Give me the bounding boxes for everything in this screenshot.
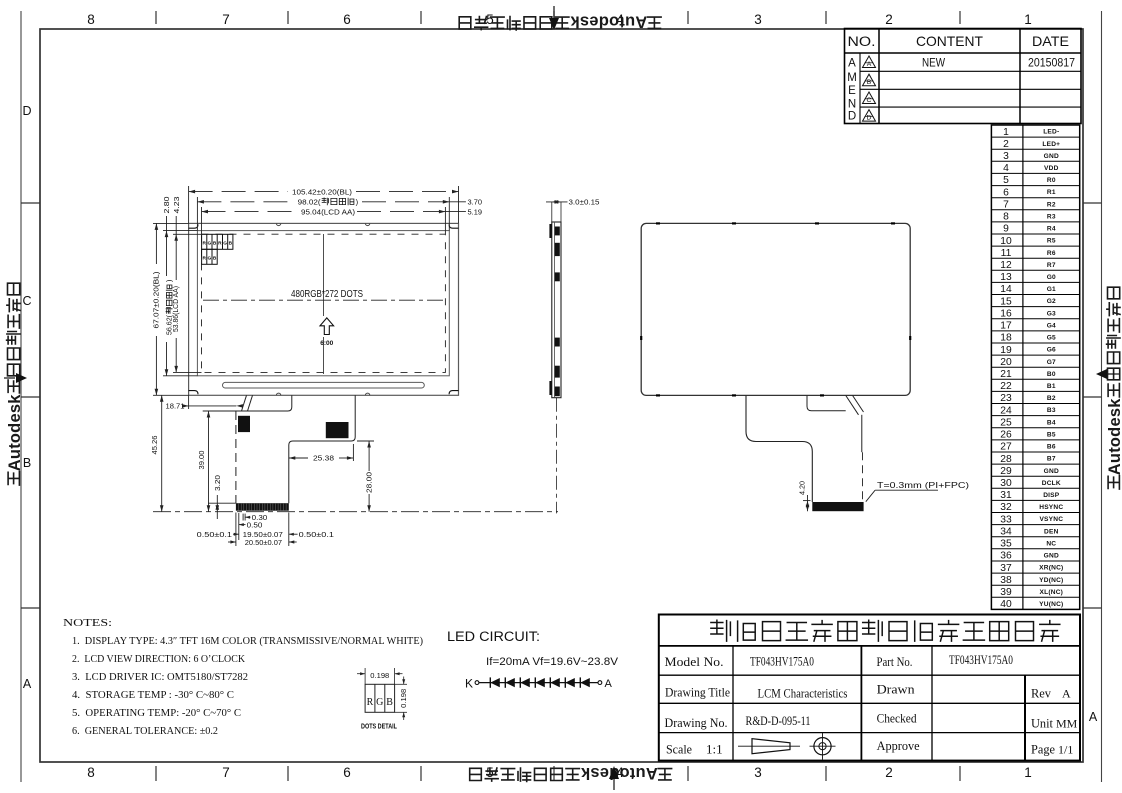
svg-text:480RGB*272 DOTS: 480RGB*272 DOTS	[291, 288, 363, 300]
svg-text:G5: G5	[1047, 335, 1056, 342]
svg-text:R: R	[218, 241, 222, 247]
svg-text:Scale: Scale	[666, 741, 692, 756]
svg-text:GND: GND	[1044, 468, 1059, 475]
svg-text:R: R	[202, 256, 206, 262]
svg-text:GND: GND	[1044, 553, 1059, 560]
svg-text:NO.: NO.	[848, 34, 876, 49]
svg-text:26: 26	[1000, 430, 1012, 441]
svg-text:0.198: 0.198	[401, 689, 408, 708]
svg-text:0.198: 0.198	[370, 673, 389, 680]
svg-text:4.20: 4.20	[799, 481, 806, 495]
svg-text:30: 30	[1000, 478, 1012, 489]
svg-text:20: 20	[1000, 357, 1012, 368]
svg-text:Model No.: Model No.	[665, 654, 724, 669]
svg-text:If=20mA Vf=19.6V~23.8V: If=20mA Vf=19.6V~23.8V	[486, 656, 619, 668]
svg-text:9: 9	[1003, 224, 1009, 235]
svg-text:23: 23	[1000, 393, 1012, 404]
svg-text:38: 38	[1000, 575, 1012, 586]
svg-text:2: 2	[885, 765, 893, 780]
svg-text:B: B	[213, 241, 217, 247]
svg-text:E: E	[848, 85, 856, 97]
svg-text:8: 8	[87, 12, 95, 27]
svg-text:6:00: 6:00	[320, 340, 333, 347]
svg-text:R5: R5	[1047, 238, 1056, 245]
svg-text:NC: NC	[1046, 540, 1056, 547]
svg-text:XR(NC): XR(NC)	[1039, 565, 1063, 572]
svg-text:29: 29	[1000, 466, 1012, 477]
svg-text:1:1: 1:1	[706, 741, 723, 756]
svg-text:CONTENT: CONTENT	[916, 33, 983, 49]
svg-text:DISP: DISP	[1043, 492, 1060, 499]
svg-text:DEN: DEN	[1044, 528, 1059, 535]
svg-text:32: 32	[1000, 502, 1012, 513]
svg-text:R: R	[202, 241, 206, 247]
svg-text:Autodesk: Autodesk	[580, 764, 657, 782]
svg-text:NEW: NEW	[922, 56, 946, 70]
svg-text:B: B	[213, 256, 217, 262]
svg-text:G2: G2	[1047, 298, 1056, 305]
svg-text:R2: R2	[1047, 201, 1056, 208]
svg-text:5.19: 5.19	[468, 208, 483, 217]
svg-text:24: 24	[1000, 405, 1012, 416]
svg-text:8: 8	[1003, 212, 1009, 223]
svg-text:28.00: 28.00	[365, 472, 374, 493]
svg-text:10: 10	[1000, 236, 1012, 247]
svg-text:1: 1	[1003, 127, 1009, 138]
svg-text:G: G	[376, 697, 383, 708]
svg-text:1/1: 1/1	[1058, 742, 1073, 756]
svg-text:3: 3	[754, 765, 762, 780]
svg-text:20.50±0.07: 20.50±0.07	[245, 538, 282, 547]
svg-text:C: C	[22, 294, 31, 308]
svg-text:31: 31	[1000, 490, 1012, 501]
svg-text:35: 35	[1000, 539, 1012, 550]
svg-text:R3: R3	[1047, 214, 1056, 221]
svg-text:16: 16	[1000, 308, 1012, 319]
svg-text:7: 7	[1003, 200, 1009, 211]
svg-text:28: 28	[1000, 454, 1012, 465]
svg-text:25: 25	[1000, 417, 1012, 428]
svg-text:TF043HV175A0: TF043HV175A0	[750, 654, 814, 669]
svg-text:G: G	[208, 241, 212, 247]
svg-text:45.26: 45.26	[150, 436, 159, 455]
svg-text:36: 36	[1000, 551, 1012, 562]
svg-text:G7: G7	[1047, 359, 1056, 366]
svg-text:R7: R7	[1047, 262, 1056, 269]
svg-text:G4: G4	[1047, 323, 1056, 330]
svg-text:TF043HV175A0: TF043HV175A0	[949, 652, 1013, 667]
svg-text:67.07±0.20(BL): 67.07±0.20(BL)	[151, 271, 160, 329]
svg-text:98.02(: 98.02(	[298, 198, 322, 207]
svg-text:GND: GND	[1044, 153, 1059, 160]
svg-text:Drawing No.: Drawing No.	[665, 715, 728, 730]
svg-text:0.50±0.1: 0.50±0.1	[299, 530, 334, 539]
svg-text:N: N	[848, 99, 856, 111]
svg-text:Autodesk: Autodesk	[6, 394, 24, 471]
svg-text:D: D	[848, 111, 856, 123]
svg-text:5. OPERATING TEMP: -20° C~70°: 5. OPERATING TEMP: -20° C~70° C	[72, 707, 241, 719]
svg-text:T=0.3mm (PI+FPC): T=0.3mm (PI+FPC)	[877, 480, 969, 490]
svg-text:39.00: 39.00	[197, 451, 206, 470]
svg-text:A: A	[1089, 710, 1098, 724]
svg-text:R4: R4	[1047, 226, 1056, 233]
svg-text:95.04(LCD AA): 95.04(LCD AA)	[301, 207, 356, 216]
svg-text:18: 18	[1000, 333, 1012, 344]
svg-text:4: 4	[1003, 163, 1009, 174]
svg-text:1. DISPLAY TYPE: 4.3″ TFT 16M: 1. DISPLAY TYPE: 4.3″ TFT 16M COLOR (TRA…	[72, 635, 423, 647]
svg-text:R1: R1	[1047, 189, 1056, 196]
svg-text:A: A	[605, 678, 613, 690]
svg-text:DOTS DETAIL: DOTS DETAIL	[361, 722, 397, 731]
svg-text:A: A	[23, 677, 32, 691]
svg-text:G0: G0	[1047, 274, 1056, 281]
svg-text:LED-: LED-	[1043, 129, 1059, 136]
svg-text:3: 3	[754, 12, 762, 27]
svg-text:B: B	[867, 79, 872, 86]
svg-text:40: 40	[1000, 599, 1012, 610]
svg-text:HSYNC: HSYNC	[1039, 504, 1063, 511]
svg-text:R0: R0	[1047, 177, 1056, 184]
svg-text:20150817: 20150817	[1028, 58, 1075, 70]
svg-text:DCLK: DCLK	[1042, 480, 1061, 487]
svg-text:B1: B1	[1047, 383, 1056, 390]
svg-text:25.38: 25.38	[313, 454, 334, 463]
svg-text:0.50±0.1: 0.50±0.1	[197, 530, 232, 539]
svg-text:B3: B3	[1047, 407, 1056, 414]
svg-text:MM: MM	[1056, 716, 1078, 730]
svg-text:G6: G6	[1047, 347, 1056, 354]
svg-text:39: 39	[1000, 587, 1012, 598]
svg-text:3. LCD DRIVER IC: OMT5180/ST7: 3. LCD DRIVER IC: OMT5180/ST7282	[72, 671, 248, 683]
svg-text:R6: R6	[1047, 250, 1056, 257]
svg-text:Autodesk: Autodesk	[570, 13, 647, 31]
svg-text:R&D-D-095-11: R&D-D-095-11	[746, 714, 811, 728]
svg-text:3.20: 3.20	[213, 475, 222, 491]
svg-text:Drawing Title: Drawing Title	[665, 684, 730, 699]
svg-text:3.0±0.15: 3.0±0.15	[569, 198, 600, 207]
svg-text:Page: Page	[1031, 741, 1055, 756]
svg-text:6: 6	[343, 12, 351, 27]
svg-text:LCM Characteristics: LCM Characteristics	[758, 686, 848, 700]
svg-text:2: 2	[1003, 139, 1009, 150]
svg-text:C: C	[867, 97, 872, 104]
svg-text:1: 1	[1024, 12, 1032, 27]
svg-text:A: A	[867, 61, 872, 68]
svg-text:2. LCD VIEW DIRECTION: 6 O’CL: 2. LCD VIEW DIRECTION: 6 O’CLOCK	[72, 653, 245, 665]
svg-text:A: A	[848, 58, 856, 70]
svg-text:21: 21	[1000, 369, 1012, 380]
svg-text:G: G	[208, 256, 212, 262]
svg-text:B: B	[229, 241, 233, 247]
svg-text:B7: B7	[1047, 456, 1056, 463]
svg-text:YU(NC): YU(NC)	[1039, 601, 1063, 608]
svg-text:3.70: 3.70	[468, 198, 483, 207]
svg-text:14: 14	[1000, 284, 1012, 295]
svg-text:Autodesk: Autodesk	[1106, 398, 1122, 475]
svg-text:27: 27	[1000, 442, 1012, 453]
svg-text:VDD: VDD	[1044, 165, 1059, 172]
svg-text:M: M	[847, 72, 857, 84]
svg-text:53.86(LCD AA): 53.86(LCD AA)	[171, 286, 180, 332]
svg-text:Approve: Approve	[877, 738, 920, 753]
svg-text:D: D	[22, 104, 31, 118]
svg-text:G1: G1	[1047, 286, 1056, 293]
svg-text:YD(NC): YD(NC)	[1039, 577, 1063, 584]
svg-text:34: 34	[1000, 526, 1012, 537]
svg-text:NOTES:: NOTES:	[63, 617, 112, 629]
svg-text:B5: B5	[1047, 431, 1056, 438]
svg-text:105.42±0.20(BL): 105.42±0.20(BL)	[292, 187, 353, 196]
svg-text:A: A	[1062, 687, 1071, 701]
svg-text:6: 6	[1003, 187, 1009, 198]
svg-text:R: R	[367, 697, 374, 708]
svg-text:G: G	[223, 241, 227, 247]
svg-text:4. STORAGE TEMP : -30° C~80°: 4. STORAGE TEMP : -30° C~80° C	[72, 689, 234, 701]
svg-text:Unit: Unit	[1031, 715, 1053, 730]
svg-text:LED CIRCUIT:: LED CIRCUIT:	[447, 629, 540, 644]
svg-text:2: 2	[885, 12, 893, 27]
svg-text:B2: B2	[1047, 395, 1056, 402]
svg-text:G3: G3	[1047, 310, 1056, 317]
svg-text:18.71: 18.71	[166, 402, 185, 411]
svg-text:Checked: Checked	[877, 710, 917, 725]
svg-text:33: 33	[1000, 514, 1012, 525]
svg-text:12: 12	[1000, 260, 1012, 271]
svg-text:11: 11	[1001, 248, 1012, 259]
svg-text:1: 1	[1024, 765, 1032, 780]
svg-text:22: 22	[1000, 381, 1012, 392]
svg-text:B0: B0	[1047, 371, 1056, 378]
svg-text:15: 15	[1000, 296, 1012, 307]
svg-text:LED+: LED+	[1042, 141, 1060, 148]
svg-text:8: 8	[87, 765, 95, 780]
svg-text:): )	[165, 280, 174, 282]
svg-text:6: 6	[343, 765, 351, 780]
svg-text:6. GENERAL TOLERANCE: ±0.2: 6. GENERAL TOLERANCE: ±0.2	[72, 725, 218, 737]
svg-text:D: D	[867, 114, 872, 121]
svg-text:Part No.: Part No.	[877, 654, 913, 669]
svg-text:37: 37	[1000, 563, 1012, 574]
svg-text:B: B	[386, 697, 393, 708]
svg-text:4.23: 4.23	[172, 197, 181, 214]
svg-text:B4: B4	[1047, 419, 1056, 426]
svg-text:0.50: 0.50	[247, 520, 263, 529]
svg-text:K: K	[465, 677, 473, 691]
svg-text:17: 17	[1000, 321, 1012, 332]
svg-text:2.80: 2.80	[162, 197, 171, 214]
svg-text:XL(NC): XL(NC)	[1040, 589, 1064, 596]
svg-text:7: 7	[222, 12, 230, 27]
svg-text:19: 19	[1000, 345, 1012, 356]
svg-text:DATE: DATE	[1032, 33, 1069, 49]
svg-text:Rev: Rev	[1031, 686, 1051, 701]
svg-text:5: 5	[1003, 175, 1009, 186]
svg-text:7: 7	[222, 765, 230, 780]
svg-text:13: 13	[1000, 272, 1012, 283]
svg-text:Drawn: Drawn	[877, 682, 916, 697]
svg-text:VSYNC: VSYNC	[1039, 516, 1063, 523]
svg-text:3: 3	[1003, 151, 1009, 162]
svg-text:B6: B6	[1047, 444, 1056, 451]
svg-text:B: B	[23, 456, 31, 470]
